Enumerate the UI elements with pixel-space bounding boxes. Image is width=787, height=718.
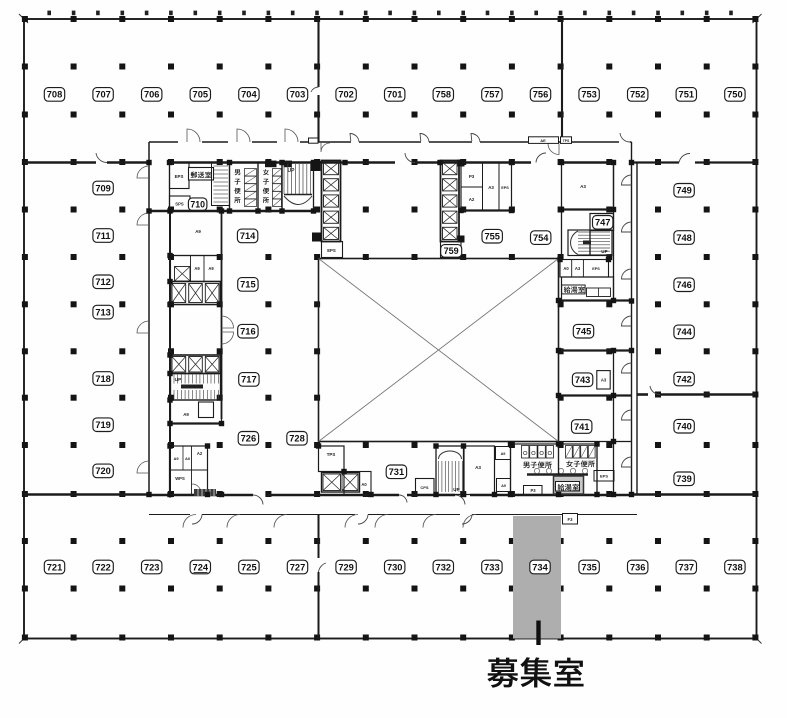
svg-text:709: 709 bbox=[95, 183, 111, 193]
svg-text:738: 738 bbox=[727, 562, 743, 572]
svg-text:737: 737 bbox=[679, 562, 695, 572]
svg-text:747: 747 bbox=[595, 218, 611, 228]
svg-text:A3: A3 bbox=[475, 465, 481, 470]
svg-text:754: 754 bbox=[533, 233, 549, 243]
svg-text:748: 748 bbox=[676, 233, 692, 243]
svg-text:WPS: WPS bbox=[175, 476, 185, 481]
svg-text:701: 701 bbox=[387, 90, 403, 100]
svg-text:710: 710 bbox=[190, 199, 205, 209]
svg-text:P3: P3 bbox=[469, 174, 475, 179]
svg-text:723: 723 bbox=[144, 562, 160, 572]
svg-text:757: 757 bbox=[484, 90, 500, 100]
svg-text:TPS: TPS bbox=[327, 452, 336, 457]
svg-text:716: 716 bbox=[240, 327, 256, 337]
svg-text:750: 750 bbox=[727, 90, 743, 100]
svg-text:A3: A3 bbox=[488, 185, 494, 190]
svg-text:A9: A9 bbox=[501, 484, 506, 488]
svg-text:A9: A9 bbox=[183, 412, 189, 417]
svg-text:UP: UP bbox=[175, 377, 182, 383]
svg-text:A9: A9 bbox=[194, 266, 200, 271]
svg-text:714: 714 bbox=[240, 231, 256, 241]
svg-text:744: 744 bbox=[676, 327, 692, 337]
svg-text:706: 706 bbox=[144, 90, 160, 100]
svg-text:739: 739 bbox=[676, 474, 692, 484]
svg-text:712: 712 bbox=[95, 277, 111, 287]
svg-text:755: 755 bbox=[484, 232, 500, 242]
svg-text:749: 749 bbox=[676, 186, 692, 196]
svg-text:736: 736 bbox=[630, 562, 646, 572]
svg-text:735: 735 bbox=[581, 562, 597, 572]
svg-text:722: 722 bbox=[95, 562, 111, 572]
svg-text:728: 728 bbox=[289, 434, 305, 444]
svg-text:EPS: EPS bbox=[501, 186, 509, 190]
svg-text:725: 725 bbox=[241, 562, 257, 572]
svg-text:A0: A0 bbox=[563, 266, 569, 271]
svg-text:741: 741 bbox=[574, 422, 590, 432]
svg-text:715: 715 bbox=[240, 280, 256, 290]
svg-text:729: 729 bbox=[338, 562, 354, 572]
svg-text:A9: A9 bbox=[173, 456, 179, 461]
svg-text:724: 724 bbox=[193, 562, 209, 572]
svg-text:742: 742 bbox=[676, 374, 692, 384]
svg-text:704: 704 bbox=[241, 90, 257, 100]
svg-text:756: 756 bbox=[533, 90, 549, 100]
svg-text:733: 733 bbox=[484, 562, 500, 572]
svg-text:UP: UP bbox=[453, 487, 459, 492]
svg-text:746: 746 bbox=[676, 280, 692, 290]
svg-text:720: 720 bbox=[95, 466, 111, 476]
svg-text:A3: A3 bbox=[575, 266, 581, 271]
svg-text:A0: A0 bbox=[185, 456, 191, 461]
svg-text:UP: UP bbox=[601, 249, 607, 254]
svg-text:A9: A9 bbox=[501, 452, 506, 456]
svg-text:F3: F3 bbox=[568, 517, 574, 522]
svg-text:EPS: EPS bbox=[600, 474, 608, 479]
svg-text:A3: A3 bbox=[580, 184, 586, 189]
svg-text:734: 734 bbox=[532, 562, 548, 572]
svg-text:A9: A9 bbox=[195, 229, 201, 234]
svg-text:A2: A2 bbox=[197, 451, 203, 456]
svg-text:702: 702 bbox=[338, 90, 354, 100]
svg-text:713: 713 bbox=[95, 307, 111, 317]
svg-text:740: 740 bbox=[676, 422, 692, 432]
svg-text:EPS: EPS bbox=[327, 248, 336, 253]
svg-text:CPS: CPS bbox=[420, 485, 429, 490]
svg-text:759: 759 bbox=[444, 246, 459, 256]
svg-text:P3: P3 bbox=[530, 488, 536, 493]
svg-text:A3: A3 bbox=[601, 378, 607, 383]
svg-text:SPS: SPS bbox=[175, 202, 184, 207]
svg-text:703: 703 bbox=[290, 90, 306, 100]
svg-text:AE: AE bbox=[540, 138, 546, 143]
svg-text:730: 730 bbox=[387, 562, 403, 572]
svg-text:753: 753 bbox=[581, 90, 597, 100]
svg-text:726: 726 bbox=[241, 434, 257, 444]
svg-text:752: 752 bbox=[630, 90, 646, 100]
svg-text:A2: A2 bbox=[469, 197, 475, 202]
svg-text:UP: UP bbox=[288, 168, 296, 174]
svg-text:732: 732 bbox=[436, 562, 452, 572]
svg-text:718: 718 bbox=[95, 374, 111, 384]
svg-text:727: 727 bbox=[290, 562, 306, 572]
svg-text:A9: A9 bbox=[208, 266, 214, 271]
svg-text:731: 731 bbox=[389, 467, 405, 477]
svg-text:708: 708 bbox=[47, 90, 63, 100]
svg-text:751: 751 bbox=[679, 90, 695, 100]
svg-text:705: 705 bbox=[193, 90, 209, 100]
svg-text:721: 721 bbox=[47, 562, 63, 572]
svg-text:745: 745 bbox=[576, 327, 592, 337]
svg-text:743: 743 bbox=[575, 375, 591, 385]
svg-text:EPS: EPS bbox=[175, 174, 184, 179]
svg-text:711: 711 bbox=[96, 231, 111, 241]
svg-text:EPS: EPS bbox=[592, 267, 600, 271]
svg-text:719: 719 bbox=[95, 420, 111, 430]
svg-text:717: 717 bbox=[241, 375, 257, 385]
svg-text:TPS: TPS bbox=[563, 139, 570, 143]
svg-text:A0: A0 bbox=[361, 482, 367, 487]
svg-text:758: 758 bbox=[436, 90, 452, 100]
svg-text:707: 707 bbox=[95, 90, 111, 100]
